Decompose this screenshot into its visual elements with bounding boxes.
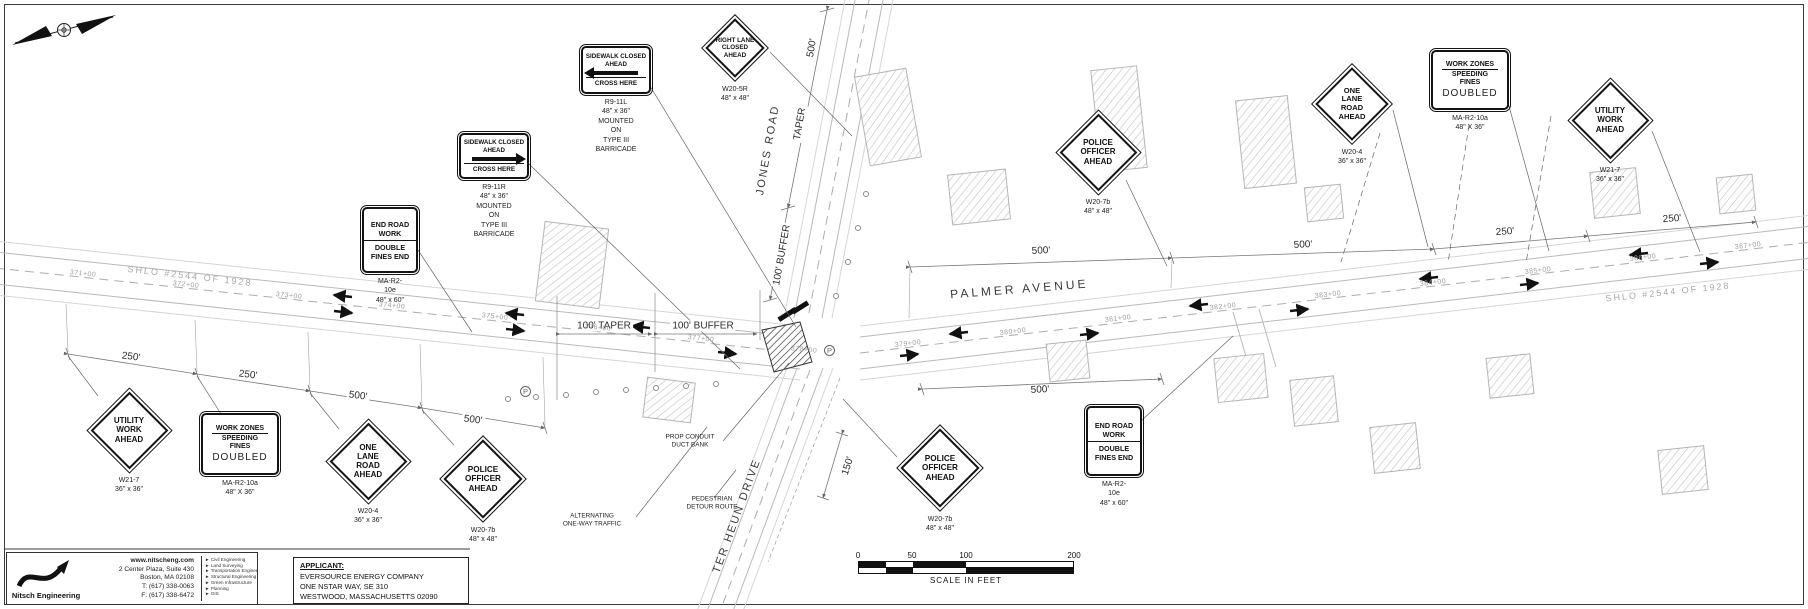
traffic-control-plan-sheet: PALMER AVENUE JONES ROAD TER HEUN DRIVE … (0, 0, 1808, 609)
sign-code-label: MA-R2-10a 48" X 36" (1452, 114, 1488, 133)
sign-text: UTILITY WORK AHEAD (1567, 77, 1653, 163)
dimension-label: 500' (1030, 245, 1053, 257)
sign-code-label: W20-5R 48" x 48" (721, 85, 749, 104)
sign-text: ONE LANE ROAD AHEAD (1311, 63, 1393, 145)
sign-work-zones-east: WORK ZONESSPEEDING FINESDOUBLEDMA-R2-10a… (1431, 50, 1509, 110)
applicant-heading: APPLICANT: (300, 561, 462, 571)
sign-text-top: END ROAD WORK (364, 218, 416, 241)
sign-code-label: W21-7 36" x 36" (115, 476, 143, 495)
scale-tick-label: 100 (959, 551, 972, 560)
applicant-lines: EVERSOURCE ENERGY COMPANY ONE NSTAR WAY,… (300, 572, 462, 602)
sign-code-label: R9-11L 48" x 36" MOUNTED ON TYPE III BAR… (596, 98, 637, 155)
dimension-label: 500' (1292, 239, 1315, 251)
left-arrow-icon (594, 71, 638, 75)
engineer-services-list: ► Civil Engineering► Land Surveying► Tra… (205, 553, 257, 604)
engineer-website: www.nitscheng.com (85, 557, 194, 566)
sign-text-bottom: CROSS HERE (473, 166, 515, 173)
sign-sidewalk-closed-left: SIDEWALK CLOSED AHEADCROSS HERER9-11L 48… (581, 46, 651, 94)
sign-text: POLICE OFFICER AHEAD (439, 435, 527, 523)
sign-text: RIGHT LANE CLOSED AHEAD (701, 14, 769, 82)
engineer-service-label: Green Infrastructure (211, 580, 252, 585)
engineer-service-label: Structural Engineering (211, 574, 256, 579)
sign-text: POLICE OFFICER AHEAD (1055, 109, 1141, 195)
sign-police-officer-west: POLICE OFFICER AHEADW20-7b 48" x 48" (439, 435, 527, 523)
sign-code-label: W20-7b 48" x 48" (926, 515, 954, 534)
north-arrow-icon (12, 15, 116, 45)
engineer-service-item: ► GIS (205, 591, 257, 597)
engineer-address: 2 Center Plaza, Suite 430 Boston, MA 021… (85, 566, 194, 583)
engineer-title-block: Nitsch Engineering www.nitscheng.com 2 C… (6, 552, 258, 605)
sign-one-lane-road-west: ONE LANE ROAD AHEADW20-4 36" x 36" (325, 418, 411, 504)
sign-text-bottom: CROSS HERE (595, 80, 637, 87)
sign-text-big: DOUBLED (1442, 88, 1497, 99)
parking-symbol-icon: P (824, 345, 835, 356)
sign-code-label: W20-4 36" x 36" (1338, 148, 1366, 167)
sign-text: POLICE OFFICER AHEAD (896, 424, 984, 512)
scale-bar-ticks: 050100200 (858, 551, 1074, 561)
sign-text-bottom: DOUBLE FINES END (364, 241, 416, 263)
sign-text-top: SIDEWALK CLOSED AHEAD (586, 53, 646, 68)
nitsch-swoosh-icon (15, 558, 77, 590)
scale-bar-label: SCALE IN FEET (858, 576, 1074, 585)
sign-plate: SIDEWALK CLOSED AHEADCROSS HERE (581, 46, 651, 94)
engineer-service-label: Planning (211, 586, 229, 591)
sign-text-mid: SPEEDING FINES (1452, 71, 1488, 88)
sign-one-lane-road-east: ONE LANE ROAD AHEADW20-4 36" x 36" (1311, 63, 1393, 145)
sign-plate: SIDEWALK CLOSED AHEADCROSS HERE (459, 133, 529, 179)
scale-bar: 050100200 SCALE IN FEET (858, 551, 1074, 585)
sign-end-road-work-east: END ROAD WORKDOUBLE FINES ENDMA-R2-10e 4… (1086, 406, 1142, 476)
sign-police-officer-south: POLICE OFFICER AHEADW20-7b 48" x 48" (896, 424, 984, 512)
scale-tick-label: 200 (1067, 551, 1080, 560)
sign-utility-work-west: UTILITY WORK AHEADW21-7 36" x 36" (86, 387, 172, 473)
sign-text-mid: SPEEDING FINES (222, 435, 258, 452)
sign-text-top: SIDEWALK CLOSED AHEAD (464, 139, 524, 154)
engineer-phone: T: (617) 338-0063 (85, 583, 194, 592)
sign-code-label: R9-11R 48" x 36" MOUNTED ON TYPE III BAR… (474, 183, 515, 240)
sign-police-officer-northeast: POLICE OFFICER AHEADW20-7b 48" x 48" (1055, 109, 1141, 195)
note-pedestrian: PEDESTRIAN DETOUR ROUTE (686, 496, 737, 513)
dimension-label: 500' (1029, 384, 1052, 396)
engineer-service-label: GIS (211, 591, 219, 596)
sign-plate: WORK ZONESSPEEDING FINESDOUBLED (1431, 50, 1509, 110)
sign-text-head: WORK ZONES (1442, 61, 1498, 70)
sign-text-big: DOUBLED (212, 452, 267, 463)
sign-work-zones-west: WORK ZONESSPEEDING FINESDOUBLEDMA-R2-10a… (201, 413, 279, 475)
note-prop-conduit: PROP CONDUIT DUCT BANK (666, 434, 715, 451)
sign-utility-work-east: UTILITY WORK AHEADW21-7 36" x 36" (1567, 77, 1653, 163)
sign-code-label: MA-R2-10e 48" x 60" (1100, 480, 1128, 508)
work-zone-area (762, 301, 812, 372)
sign-code-label: W20-7b 48" x 48" (1084, 198, 1112, 217)
sign-text: UTILITY WORK AHEAD (86, 387, 172, 473)
drawing-linework (0, 0, 1808, 609)
engineer-fax: F: (617) 338-6472 (85, 592, 194, 601)
sign-end-road-work-west: END ROAD WORKDOUBLE FINES ENDMA-R2-10e 4… (362, 207, 418, 273)
sign-sidewalk-closed-right: SIDEWALK CLOSED AHEADCROSS HERER9-11R 48… (459, 133, 529, 179)
scale-tick-label: 50 (908, 551, 917, 560)
sign-code-label: W20-7b 48" x 48" (469, 526, 497, 545)
right-arrow-icon (472, 157, 516, 161)
dimension-label: 100' BUFFER (670, 321, 735, 332)
engineer-service-label: Civil Engineering (211, 557, 245, 562)
engineer-logo: Nitsch Engineering (7, 553, 85, 604)
scale-bar-graphic (858, 561, 1074, 574)
sign-text-bottom: DOUBLE FINES END (1088, 442, 1140, 464)
sign-plate: WORK ZONESSPEEDING FINESDOUBLED (201, 413, 279, 475)
applicant-block: APPLICANT: EVERSOURCE ENERGY COMPANY ONE… (293, 557, 469, 604)
engineer-service-label: Land Surveying (211, 563, 243, 568)
dimension-label: 250' (1660, 213, 1683, 226)
sign-plate: END ROAD WORKDOUBLE FINES END (1086, 406, 1142, 476)
sign-text: ONE LANE ROAD AHEAD (325, 418, 411, 504)
sign-right-lane-closed-ahead: RIGHT LANE CLOSED AHEADW20-5R 48" x 48" (701, 14, 769, 82)
engineer-service-label: Transportation Engineering (211, 568, 257, 573)
sign-text-top: END ROAD WORK (1088, 419, 1140, 442)
sign-code-label: W20-4 36" x 36" (354, 507, 382, 526)
scale-tick-label: 0 (856, 551, 860, 560)
sign-code-label: MA-R2-10a 48" X 36" (222, 479, 258, 498)
titleblock-vertical-divider (201, 556, 202, 601)
engineer-firm-name: Nitsch Engineering (12, 591, 80, 600)
sign-plate: END ROAD WORKDOUBLE FINES END (362, 207, 418, 273)
sign-code-label: W21-7 36" x 36" (1596, 166, 1624, 185)
dimension-label: 250' (1493, 226, 1516, 239)
sign-divider (586, 77, 647, 78)
parking-symbol-icon: P (520, 386, 531, 397)
engineer-contact: www.nitscheng.com 2 Center Plaza, Suite … (85, 553, 198, 604)
sign-text-head: WORK ZONES (212, 425, 268, 434)
note-alternating: ALTERNATING ONE-WAY TRAFFIC (563, 513, 621, 530)
